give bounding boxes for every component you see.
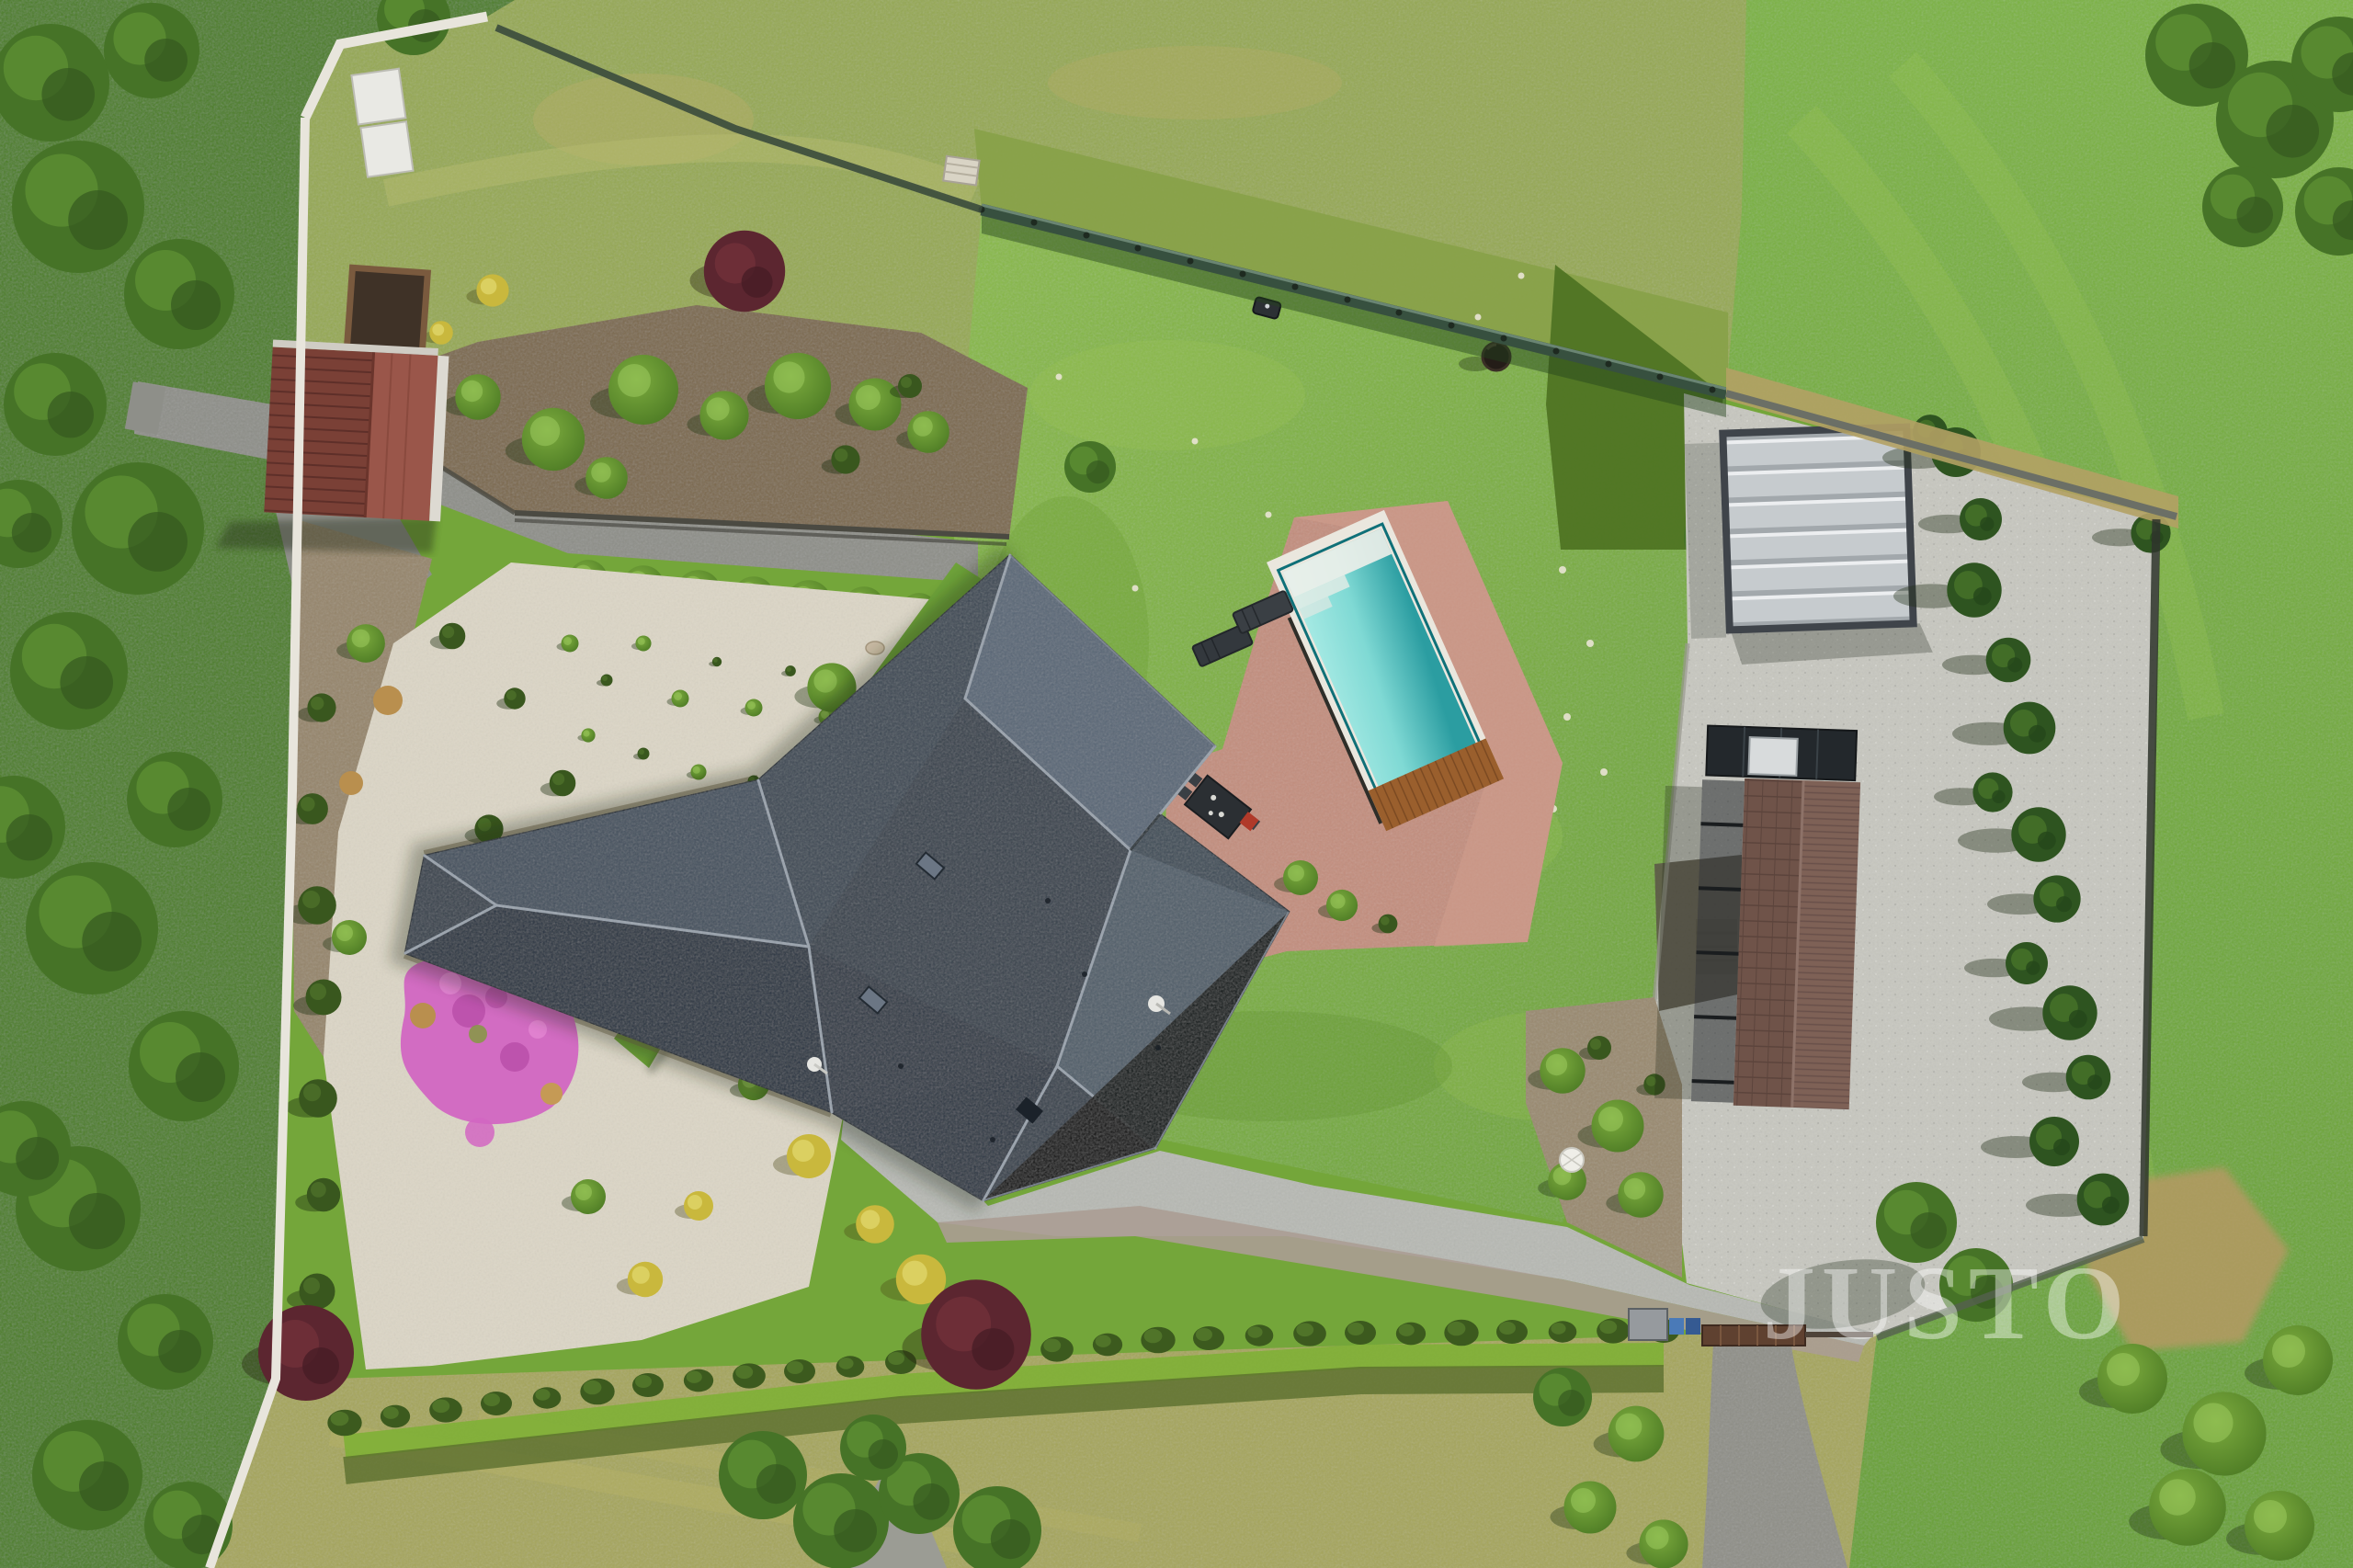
rooftop-unit: [1748, 737, 1797, 776]
lawn-tree: [1064, 441, 1116, 493]
waste-bin: [1686, 1318, 1700, 1335]
watermark: JUSTO: [1763, 1243, 2131, 1364]
parasol: [1560, 1148, 1584, 1172]
gate-hut: [1629, 1309, 1667, 1340]
carport-canopy: [1726, 431, 1909, 627]
waste-bin: [1669, 1318, 1684, 1335]
pallet: [943, 156, 979, 186]
aerial-photo: JUSTO: [0, 0, 2353, 1568]
